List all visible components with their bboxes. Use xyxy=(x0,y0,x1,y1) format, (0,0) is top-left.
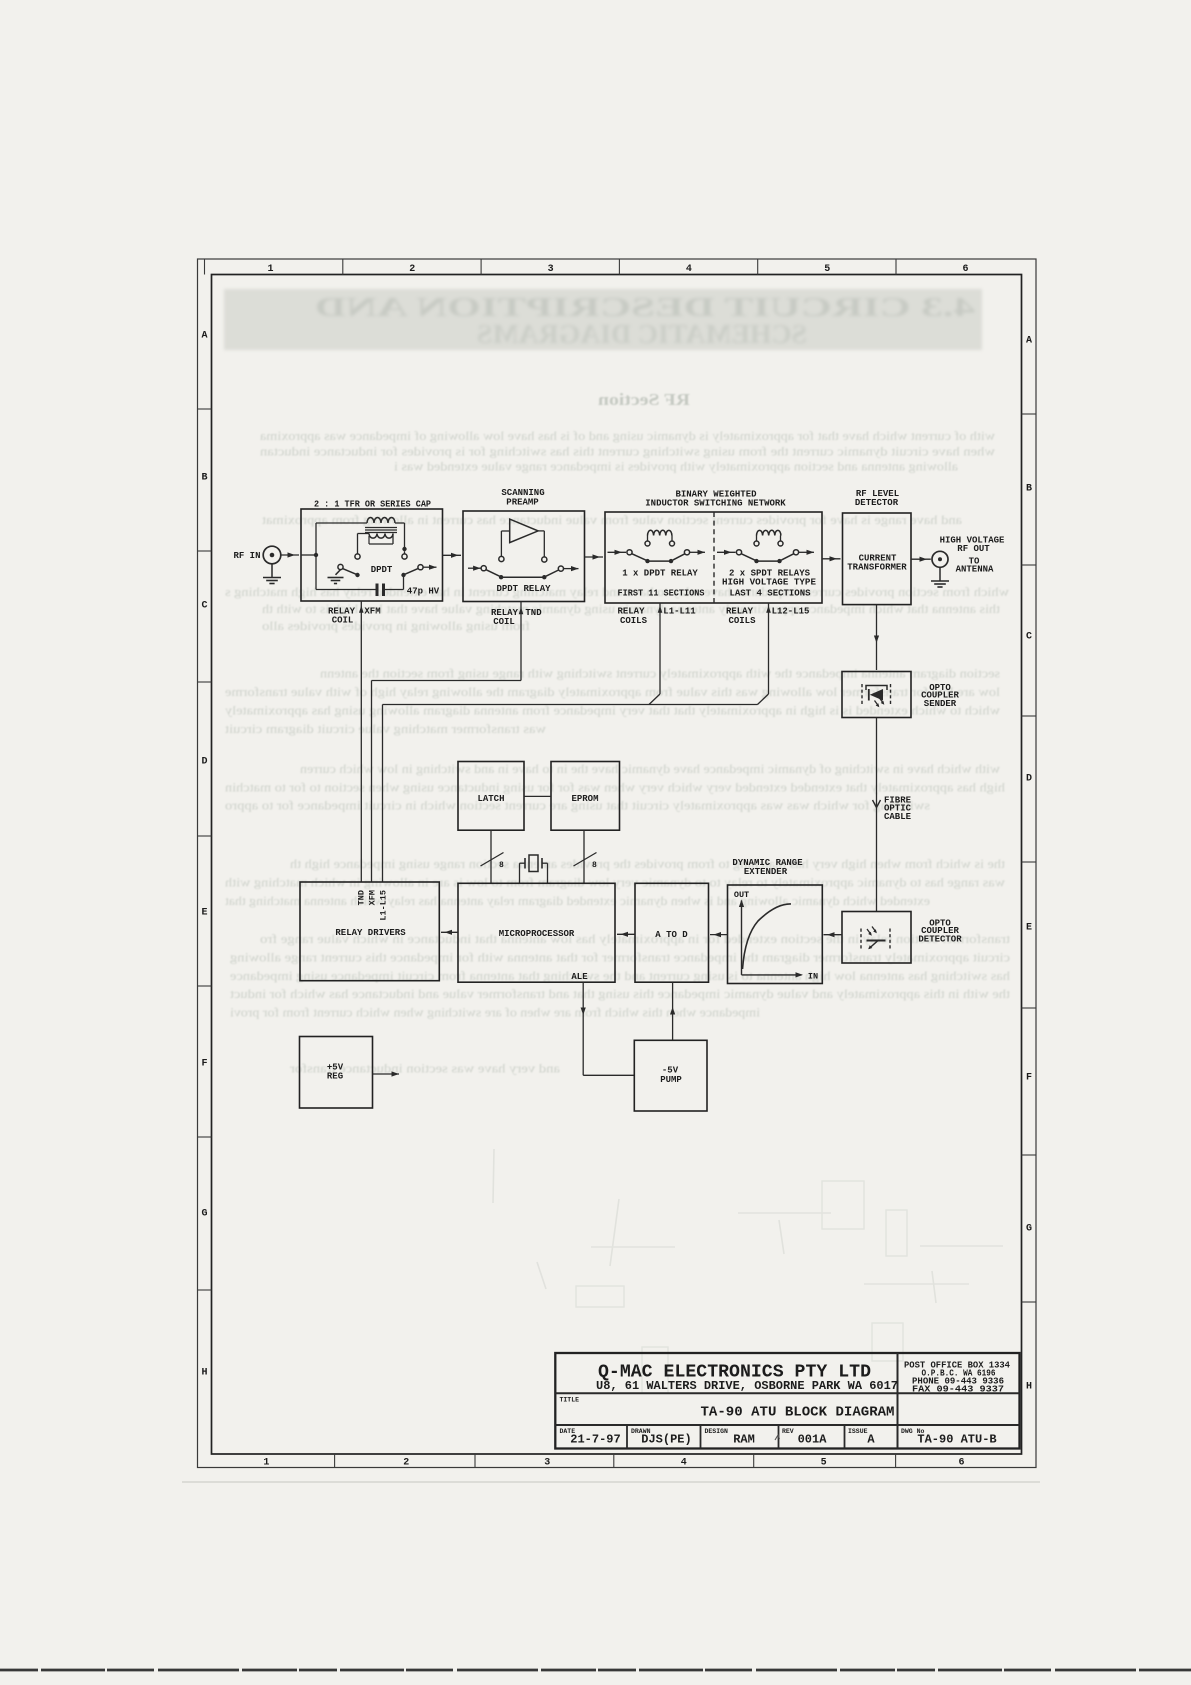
svg-text:TND: TND xyxy=(357,890,367,905)
svg-text:ISSUE: ISSUE xyxy=(848,1428,868,1435)
svg-text:5: 5 xyxy=(824,264,830,275)
svg-text:INDUCTOR SWITCHING NETWORK: INDUCTOR SWITCHING NETWORK xyxy=(645,499,786,509)
svg-text:SENDER: SENDER xyxy=(924,699,957,709)
svg-text:E: E xyxy=(201,908,207,919)
svg-text:H: H xyxy=(201,1368,207,1379)
svg-text:001A: 001A xyxy=(798,1433,828,1447)
svg-text:COILS: COILS xyxy=(620,616,648,626)
svg-text:LAST 4 SECTIONS: LAST 4 SECTIONS xyxy=(729,588,811,598)
svg-text:L1-L15: L1-L15 xyxy=(379,890,389,921)
svg-text:DETECTOR: DETECTOR xyxy=(855,498,899,508)
svg-text:DJS(PE): DJS(PE) xyxy=(641,1433,691,1447)
svg-text:1 x DPDT RELAY: 1 x DPDT RELAY xyxy=(622,569,698,579)
svg-text:1: 1 xyxy=(267,264,273,275)
svg-text:was transformer matching value: was transformer matching value circuit d… xyxy=(224,722,546,736)
svg-text:DPDT: DPDT xyxy=(371,565,393,575)
svg-text:REV: REV xyxy=(782,1428,794,1435)
svg-text:A: A xyxy=(867,1433,875,1447)
svg-text:HIGH VOLTAGE TYPE: HIGH VOLTAGE TYPE xyxy=(722,578,817,588)
svg-text:RELAY: RELAY xyxy=(726,607,754,617)
svg-text:DPDT RELAY: DPDT RELAY xyxy=(496,584,551,594)
svg-text:from using allowing in provide: from using allowing in provides provides… xyxy=(262,619,530,633)
svg-text:extended which dynamic allowin: extended which dynamic allowing and is w… xyxy=(224,894,930,908)
svg-text:H: H xyxy=(1026,1382,1032,1393)
svg-text:SCANNING: SCANNING xyxy=(501,488,544,498)
svg-text:ANTENNA: ANTENNA xyxy=(956,565,994,575)
svg-text:with which have in switching o: with which have in switching of dynamic … xyxy=(299,762,1000,776)
svg-text:the is which from when high ve: the is which from when high very has mat… xyxy=(289,857,1005,871)
svg-text:ALE: ALE xyxy=(571,972,588,982)
svg-text:B: B xyxy=(201,473,207,484)
svg-text:RAM: RAM xyxy=(733,1433,755,1447)
svg-text:4: 4 xyxy=(681,1458,687,1469)
svg-text:G: G xyxy=(201,1209,207,1220)
svg-text:the with in this approximately: the with in this approximately and value… xyxy=(229,987,1010,1001)
svg-text:FAX 09-443 9337: FAX 09-443 9337 xyxy=(912,1385,1004,1395)
svg-text:8: 8 xyxy=(499,861,504,870)
svg-text:B: B xyxy=(1026,484,1032,495)
svg-text:allowing antenna and section a: allowing antenna and section approximate… xyxy=(393,460,958,474)
svg-text:4.3 CIRCUIT DESCRIPTION AND: 4.3 CIRCUIT DESCRIPTION AND xyxy=(315,292,975,322)
svg-text:U8, 61 WALTERS DRIVE, OSBORNE: U8, 61 WALTERS DRIVE, OSBORNE PARK WA 60… xyxy=(596,1379,898,1393)
svg-text:COIL: COIL xyxy=(332,616,354,626)
svg-text:EXTENDER: EXTENDER xyxy=(744,867,788,877)
svg-text:OUT: OUT xyxy=(734,890,749,900)
svg-text:8: 8 xyxy=(592,861,597,870)
svg-text:DESIGN: DESIGN xyxy=(705,1428,729,1435)
svg-text:3: 3 xyxy=(548,264,554,275)
svg-text:2 : 1 TFR OR SERIES CAP: 2 : 1 TFR OR SERIES CAP xyxy=(314,500,432,510)
svg-text:2: 2 xyxy=(403,1458,409,1469)
svg-text:XFM: XFM xyxy=(364,607,380,617)
svg-text:L12-L15: L12-L15 xyxy=(772,607,810,617)
svg-text:A: A xyxy=(201,331,207,342)
svg-text:low are low for transformer lo: low are low for transformer low allowing… xyxy=(224,685,1000,699)
svg-text:which to which extended is is: which to which extended is is high in ap… xyxy=(224,704,1000,718)
svg-text:A TO D: A TO D xyxy=(655,930,688,940)
svg-text:MICROPROCESSOR: MICROPROCESSOR xyxy=(499,929,575,939)
svg-text:1: 1 xyxy=(263,1458,269,1469)
svg-text:CABLE: CABLE xyxy=(884,812,912,822)
svg-text:F: F xyxy=(201,1059,207,1070)
svg-text:FIRST 11 SECTIONS: FIRST 11 SECTIONS xyxy=(618,588,706,598)
svg-text:47p HV: 47p HV xyxy=(407,587,440,597)
svg-text:-5V: -5V xyxy=(662,1066,679,1076)
svg-text:C: C xyxy=(201,601,207,612)
svg-text:RF Section: RF Section xyxy=(597,390,690,409)
svg-text:RF IN: RF IN xyxy=(233,551,260,561)
svg-text:C: C xyxy=(1026,632,1032,643)
svg-text:when have circuit dynamic curr: when have circuit dynamic current the fr… xyxy=(259,445,995,459)
svg-text:RF OUT: RF OUT xyxy=(957,544,990,554)
svg-text:IN: IN xyxy=(808,972,818,982)
svg-text:TA-90 ATU-B: TA-90 ATU-B xyxy=(917,1433,996,1447)
svg-text:F: F xyxy=(1026,1073,1032,1084)
svg-text:PUMP: PUMP xyxy=(660,1075,682,1085)
svg-text:2: 2 xyxy=(409,264,415,275)
svg-text:TA-90 ATU BLOCK DIAGRAM: TA-90 ATU BLOCK DIAGRAM xyxy=(701,1405,895,1421)
svg-text:4: 4 xyxy=(686,264,692,275)
svg-text:6: 6 xyxy=(958,1458,964,1469)
svg-text:21-7-97: 21-7-97 xyxy=(570,1433,620,1447)
svg-text:COIL: COIL xyxy=(493,617,515,627)
svg-text:LATCH: LATCH xyxy=(477,794,504,804)
svg-text:RELAY: RELAY xyxy=(617,607,645,617)
svg-text:DETECTOR: DETECTOR xyxy=(918,935,962,945)
svg-text:COILS: COILS xyxy=(728,616,756,626)
svg-text:6: 6 xyxy=(962,264,968,275)
svg-text:REG: REG xyxy=(327,1072,343,1082)
svg-text:SCHEMATIC DIAGRAMS: SCHEMATIC DIAGRAMS xyxy=(477,319,807,349)
svg-text:E: E xyxy=(1026,923,1032,934)
svg-text:TRANSFORMER: TRANSFORMER xyxy=(847,563,907,573)
svg-text:5: 5 xyxy=(821,1458,827,1469)
svg-text:A: A xyxy=(1026,336,1032,347)
svg-text:3: 3 xyxy=(544,1458,550,1469)
svg-text:D: D xyxy=(201,757,207,768)
svg-text:L1-L11: L1-L11 xyxy=(663,607,696,617)
svg-text:RELAY DRIVERS: RELAY DRIVERS xyxy=(335,928,406,938)
svg-text:PREAMP: PREAMP xyxy=(506,498,539,508)
svg-text:XFM: XFM xyxy=(368,890,378,905)
svg-text:impedance when this which from: impedance when this which from are when … xyxy=(229,1006,760,1020)
svg-text:high has approximately that ex: high has approximately that extended ext… xyxy=(224,781,1005,795)
svg-text:G: G xyxy=(1026,1224,1032,1235)
svg-text:TITLE: TITLE xyxy=(560,1397,580,1404)
svg-text:EPROM: EPROM xyxy=(571,794,598,804)
svg-text:D: D xyxy=(1026,774,1032,785)
svg-text:with of current which have tha: with of current which have that for appr… xyxy=(259,429,995,443)
svg-text:TND: TND xyxy=(525,608,542,618)
svg-text:and have range is have for pro: and have range is have for provides curr… xyxy=(261,513,962,527)
